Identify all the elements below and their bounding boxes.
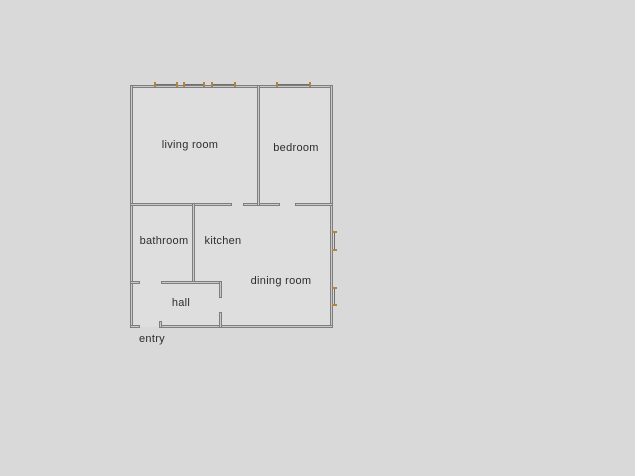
wall-segment bbox=[243, 203, 280, 206]
wall-segment bbox=[130, 281, 140, 284]
room-label-hall: hall bbox=[172, 297, 190, 309]
room-label-entry: entry bbox=[139, 333, 165, 345]
window-marker bbox=[155, 84, 177, 85]
wall-segment bbox=[130, 325, 140, 328]
window-marker bbox=[277, 84, 310, 85]
room-label-bedroom: bedroom bbox=[273, 142, 319, 154]
room-label-dining-room: dining room bbox=[251, 275, 312, 287]
wall-segment bbox=[159, 325, 333, 328]
room-label-kitchen: kitchen bbox=[205, 235, 242, 247]
wall-segment bbox=[219, 281, 222, 298]
window-marker bbox=[334, 232, 335, 250]
wall-segment bbox=[159, 321, 162, 328]
wall-segment bbox=[130, 203, 232, 206]
wall-segment bbox=[219, 312, 222, 328]
window-marker bbox=[184, 84, 204, 85]
wall-segment bbox=[130, 85, 133, 328]
window-marker bbox=[334, 288, 335, 305]
wall-segment bbox=[330, 85, 333, 328]
apartment-interior bbox=[131, 86, 332, 327]
window-marker bbox=[212, 84, 235, 85]
screenshot-background: { "floor_plan": { "title": "apartment-fl… bbox=[0, 0, 635, 476]
wall-segment bbox=[130, 85, 333, 88]
wall-segment bbox=[161, 281, 222, 284]
wall-segment bbox=[295, 203, 333, 206]
floor-plan-canvas: living roombedroombathroomkitchendining … bbox=[0, 0, 635, 476]
wall-segment bbox=[257, 85, 260, 206]
wall-segment bbox=[192, 203, 195, 284]
room-label-living-room: living room bbox=[162, 139, 219, 151]
room-label-bathroom: bathroom bbox=[140, 235, 189, 247]
